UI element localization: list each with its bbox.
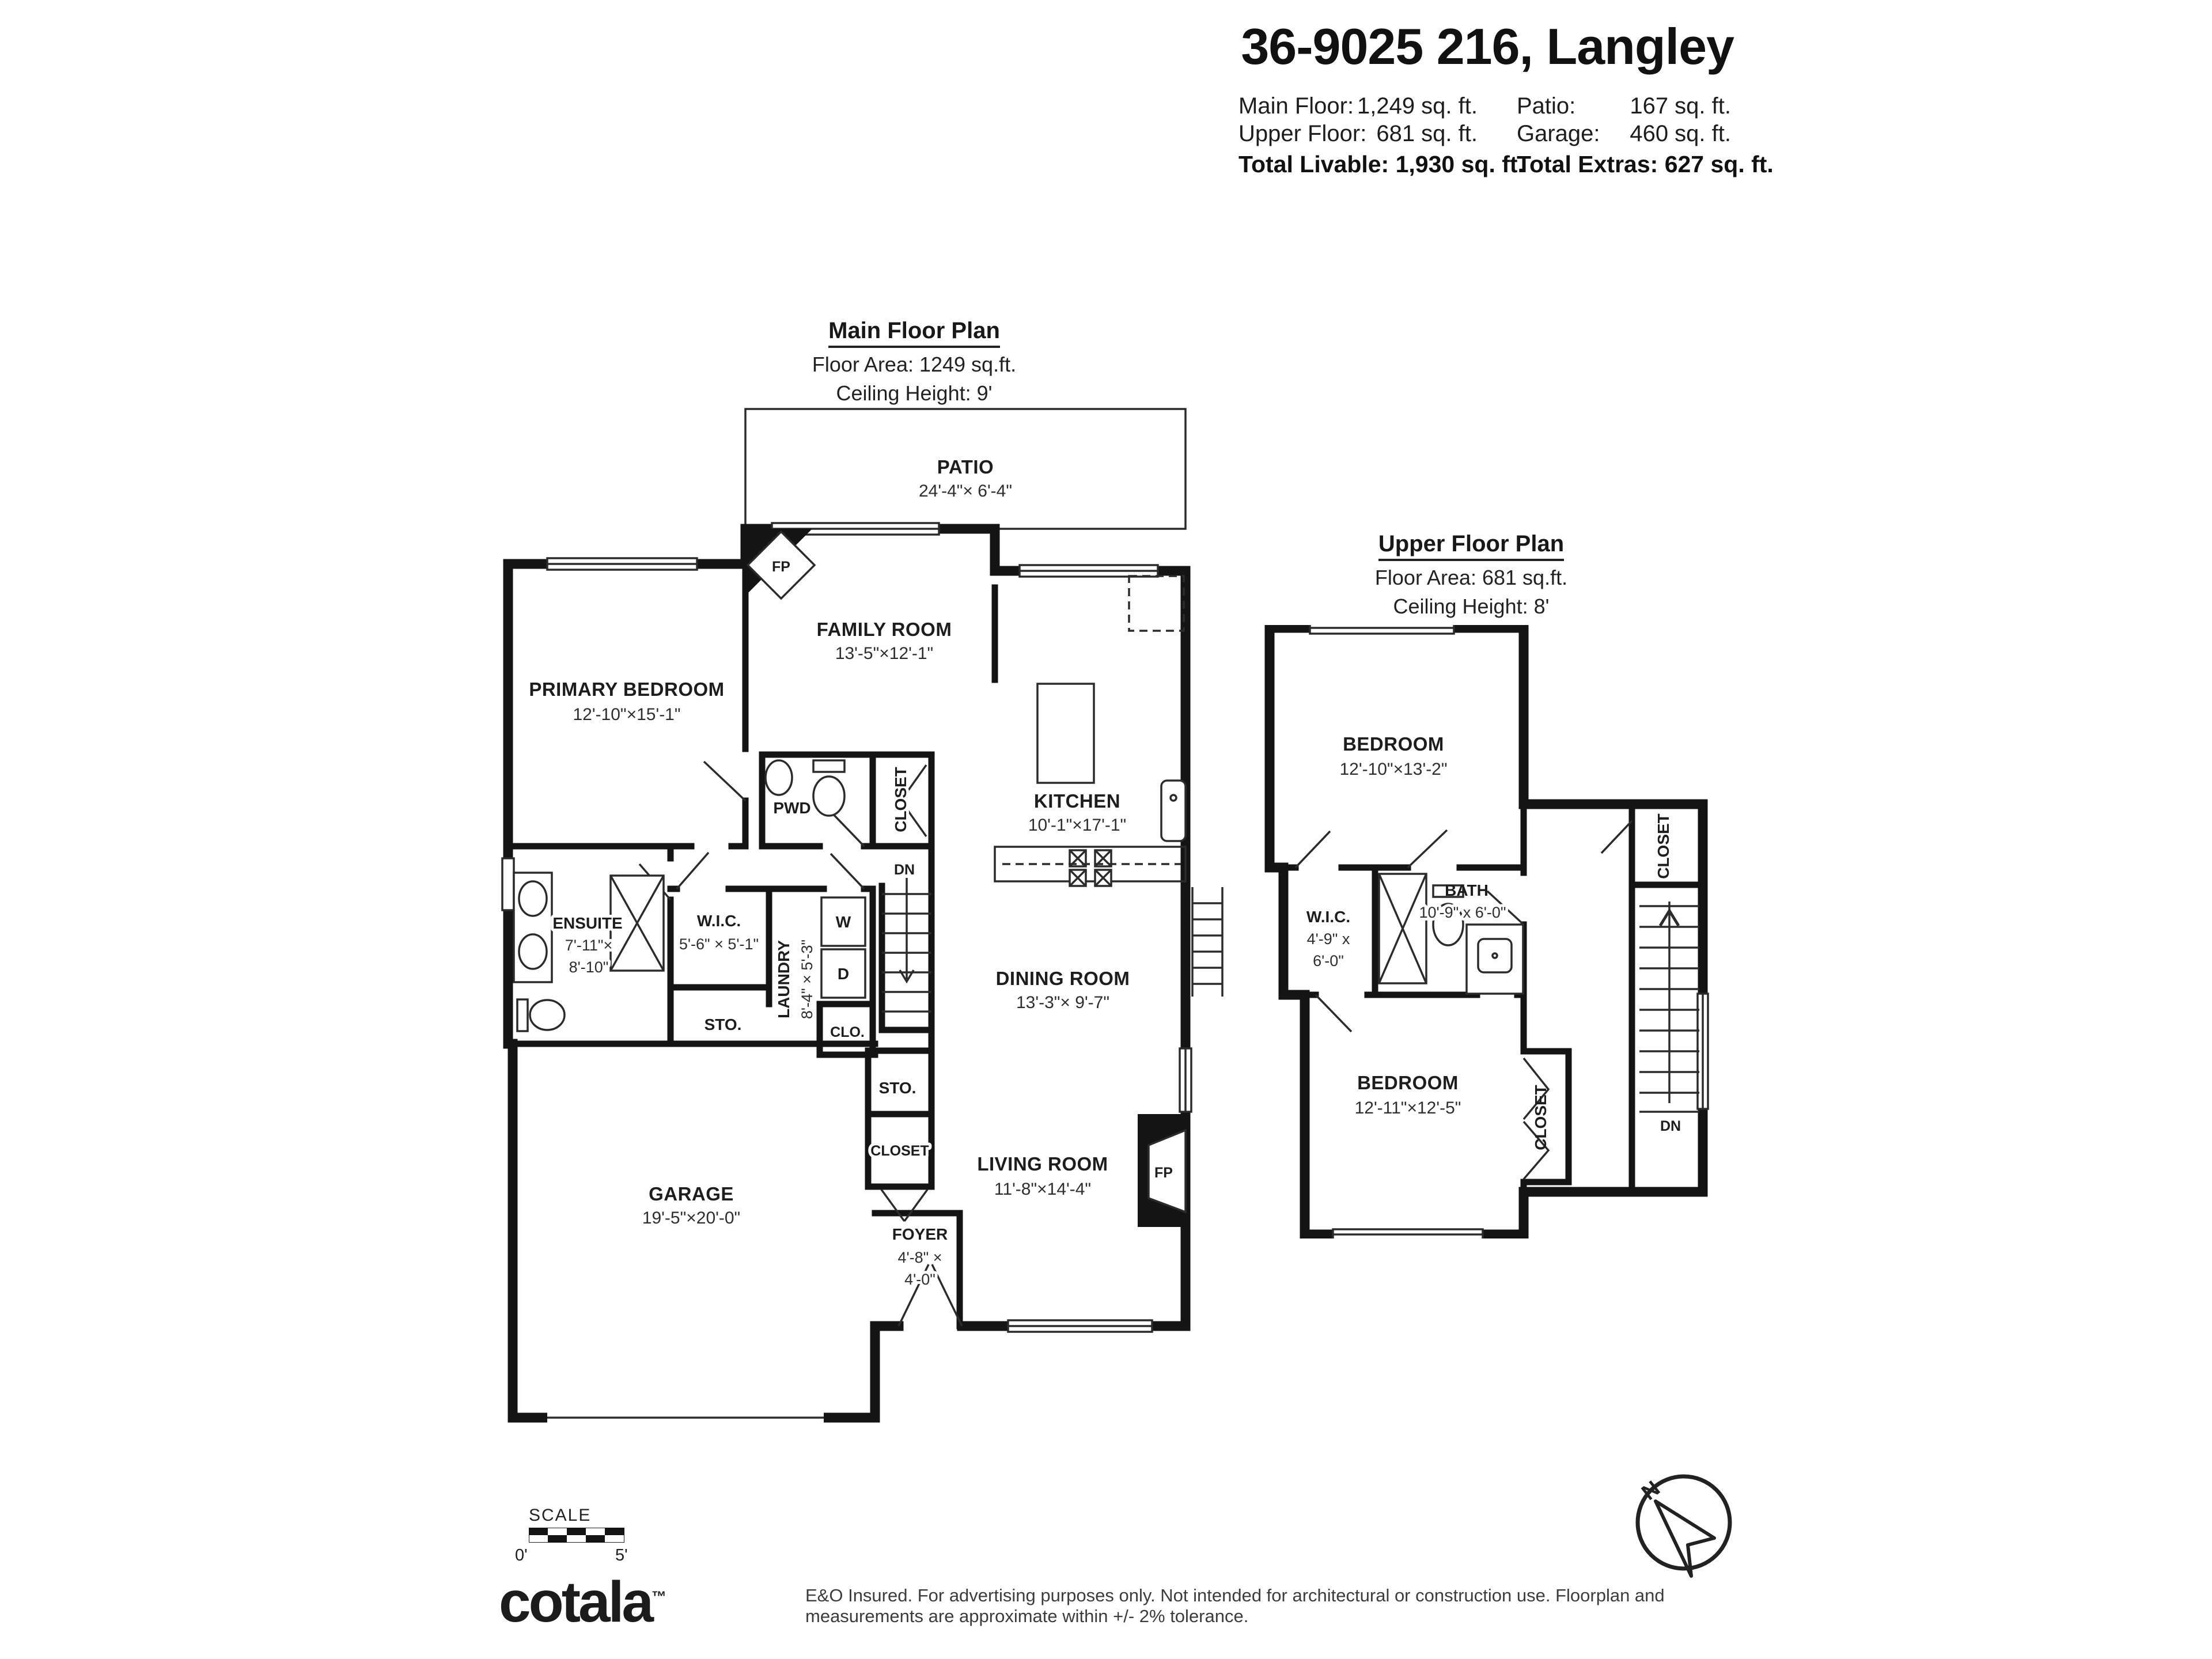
stat-patio-value: 167 sq. ft. [1607, 93, 1731, 119]
room-dims-wic-upper-2: 6'-0" [1313, 952, 1344, 969]
room-label-laundry: LAUNDRY [775, 940, 793, 1018]
room-dims-laundry: 8'-4" × 5'-3" [798, 940, 816, 1019]
scale-label: SCALE [529, 1506, 591, 1525]
room-label-patio: PATIO [937, 456, 994, 478]
stat-garage-value: 460 sq. ft. [1607, 121, 1731, 147]
room-label-foyer-closet: CLOSET [870, 1143, 929, 1159]
room-dims-bedroom-top: 12'-10"×13'-2" [1339, 760, 1447, 779]
room-label-garage: GARAGE [649, 1183, 734, 1205]
brand-trademark: ™ [652, 1588, 666, 1605]
dryer-label: D [838, 965, 849, 983]
scale-end-label: 5' [615, 1546, 628, 1565]
room-label-family: FAMILY ROOM [817, 619, 952, 640]
total-extras: Total Extras: 627 sq. ft. [1517, 151, 1774, 178]
window [502, 858, 514, 910]
room-dims-wic-upper-1: 4'-9" x [1307, 930, 1350, 948]
staircase-upper [1639, 902, 1699, 1112]
room-label-hall-closet: CLOSET [892, 767, 910, 832]
room-dims-dining: 13'-3"× 9'-7" [1016, 993, 1109, 1012]
staircase-main [882, 878, 931, 1012]
main-floor-title: Main Floor Plan [828, 318, 1000, 348]
north-arrow-icon: N [1623, 1456, 1744, 1580]
page-title: 36-9025 216, Langley [1152, 17, 1734, 76]
room-dims-bath: 10'-9" x 6'-0" [1419, 904, 1506, 921]
window [1310, 625, 1454, 634]
room-label-closet-top: CLOSET [1654, 813, 1672, 879]
upper-floor-plan: BEDROOM 12'-10"×13'-2" CLOSET W.I.C. 4'-… [1264, 625, 1714, 1238]
stairs-dn-label: DN [894, 862, 915, 878]
scale-bar [529, 1528, 624, 1543]
room-label-wic-upper: W.I.C. [1306, 908, 1350, 926]
room-label-closet-bottom: CLOSET [1532, 1085, 1550, 1150]
fireplace-living-label: FP [1154, 1165, 1173, 1181]
room-label-kitchen: KITCHEN [1034, 790, 1120, 812]
upper-floor-area: Floor Area: 681 sq.ft. [1298, 566, 1644, 590]
fireplace-family-label: FP [772, 559, 790, 575]
room-label-living: LIVING ROOM [977, 1153, 1108, 1175]
floorplan-page: 36-9025 216, Langley Main Floor: 1,249 s… [0, 0, 2212, 1659]
room-label-storage1: STO. [704, 1016, 742, 1033]
room-label-primary: PRIMARY BEDROOM [529, 679, 724, 700]
main-floor-area: Floor Area: 1249 sq.ft. [741, 353, 1087, 377]
room-dims-foyer-2: 4'-0" [904, 1271, 935, 1288]
kitchen-fixtures [995, 576, 1185, 886]
disclaimer-text: E&O Insured. For advertising purposes on… [805, 1585, 1756, 1627]
upper-floor-title: Upper Floor Plan [1378, 531, 1564, 561]
brand-logo: cotala™ [499, 1569, 666, 1635]
room-dims-garage: 19'-5"×20'-0" [642, 1209, 740, 1228]
room-label-wic: W.I.C. [697, 912, 741, 930]
room-dims-family: 13'-5"×12'-1" [835, 644, 933, 663]
main-floor-plan: PATIO 24'-4"× 6'-4" FAMILY ROOM 13'-5"×1… [501, 403, 1227, 1463]
total-livable: Total Livable: 1,930 sq. ft. [1238, 151, 1524, 178]
main-floor-heading: Main Floor Plan Floor Area: 1249 sq.ft. … [741, 318, 1087, 406]
upper-floor-heading: Upper Floor Plan Floor Area: 681 sq.ft. … [1298, 531, 1644, 619]
room-dims-primary: 12'-10"×15'-1" [573, 705, 680, 724]
brand-name: cotala [499, 1570, 652, 1634]
door-swings [1296, 821, 1632, 1179]
room-dims-living: 11'-8"×14'-4" [994, 1180, 1091, 1199]
washer-label: W [836, 913, 851, 931]
room-label-foyer: FOYER [892, 1225, 948, 1243]
room-label-clo: CLO. [830, 1024, 865, 1040]
room-dims-foyer-1: 4'-8" × [897, 1249, 942, 1266]
room-dims-ensuite-2: 8'-10" [569, 959, 609, 976]
room-label-bedroom-bottom: BEDROOM [1357, 1072, 1459, 1093]
room-dims-bedroom-bottom: 12'-11"×12'-5" [1355, 1099, 1461, 1118]
interior-walls [1270, 804, 1703, 1192]
upper-floor-ceiling: Ceiling Height: 8' [1298, 594, 1644, 619]
stat-upper-floor-value: 681 sq. ft. [1328, 121, 1478, 147]
exterior-steps [1192, 887, 1222, 997]
room-label-pwd: PWD [773, 799, 810, 817]
stat-main-floor-value: 1,249 sq. ft. [1328, 93, 1478, 119]
room-label-storage2: STO. [879, 1079, 916, 1097]
stairs-dn-label-upper: DN [1660, 1118, 1681, 1134]
room-dims-patio: 24'-4"× 6'-4" [919, 482, 1012, 501]
room-dims-wic: 5'-6" × 5'-1" [679, 935, 759, 953]
room-dims-kitchen: 10'-1"×17'-1" [1028, 816, 1126, 835]
room-label-bath: BATH [1445, 881, 1488, 899]
scale-start-label: 0' [515, 1546, 528, 1565]
room-dims-ensuite-1: 7'-11"× [565, 937, 613, 954]
room-label-ensuite: ENSUITE [552, 914, 622, 932]
main-floor-ceiling: Ceiling Height: 9' [741, 381, 1087, 406]
room-label-dining: DINING ROOM [996, 968, 1130, 989]
room-label-bedroom-top: BEDROOM [1343, 733, 1444, 755]
